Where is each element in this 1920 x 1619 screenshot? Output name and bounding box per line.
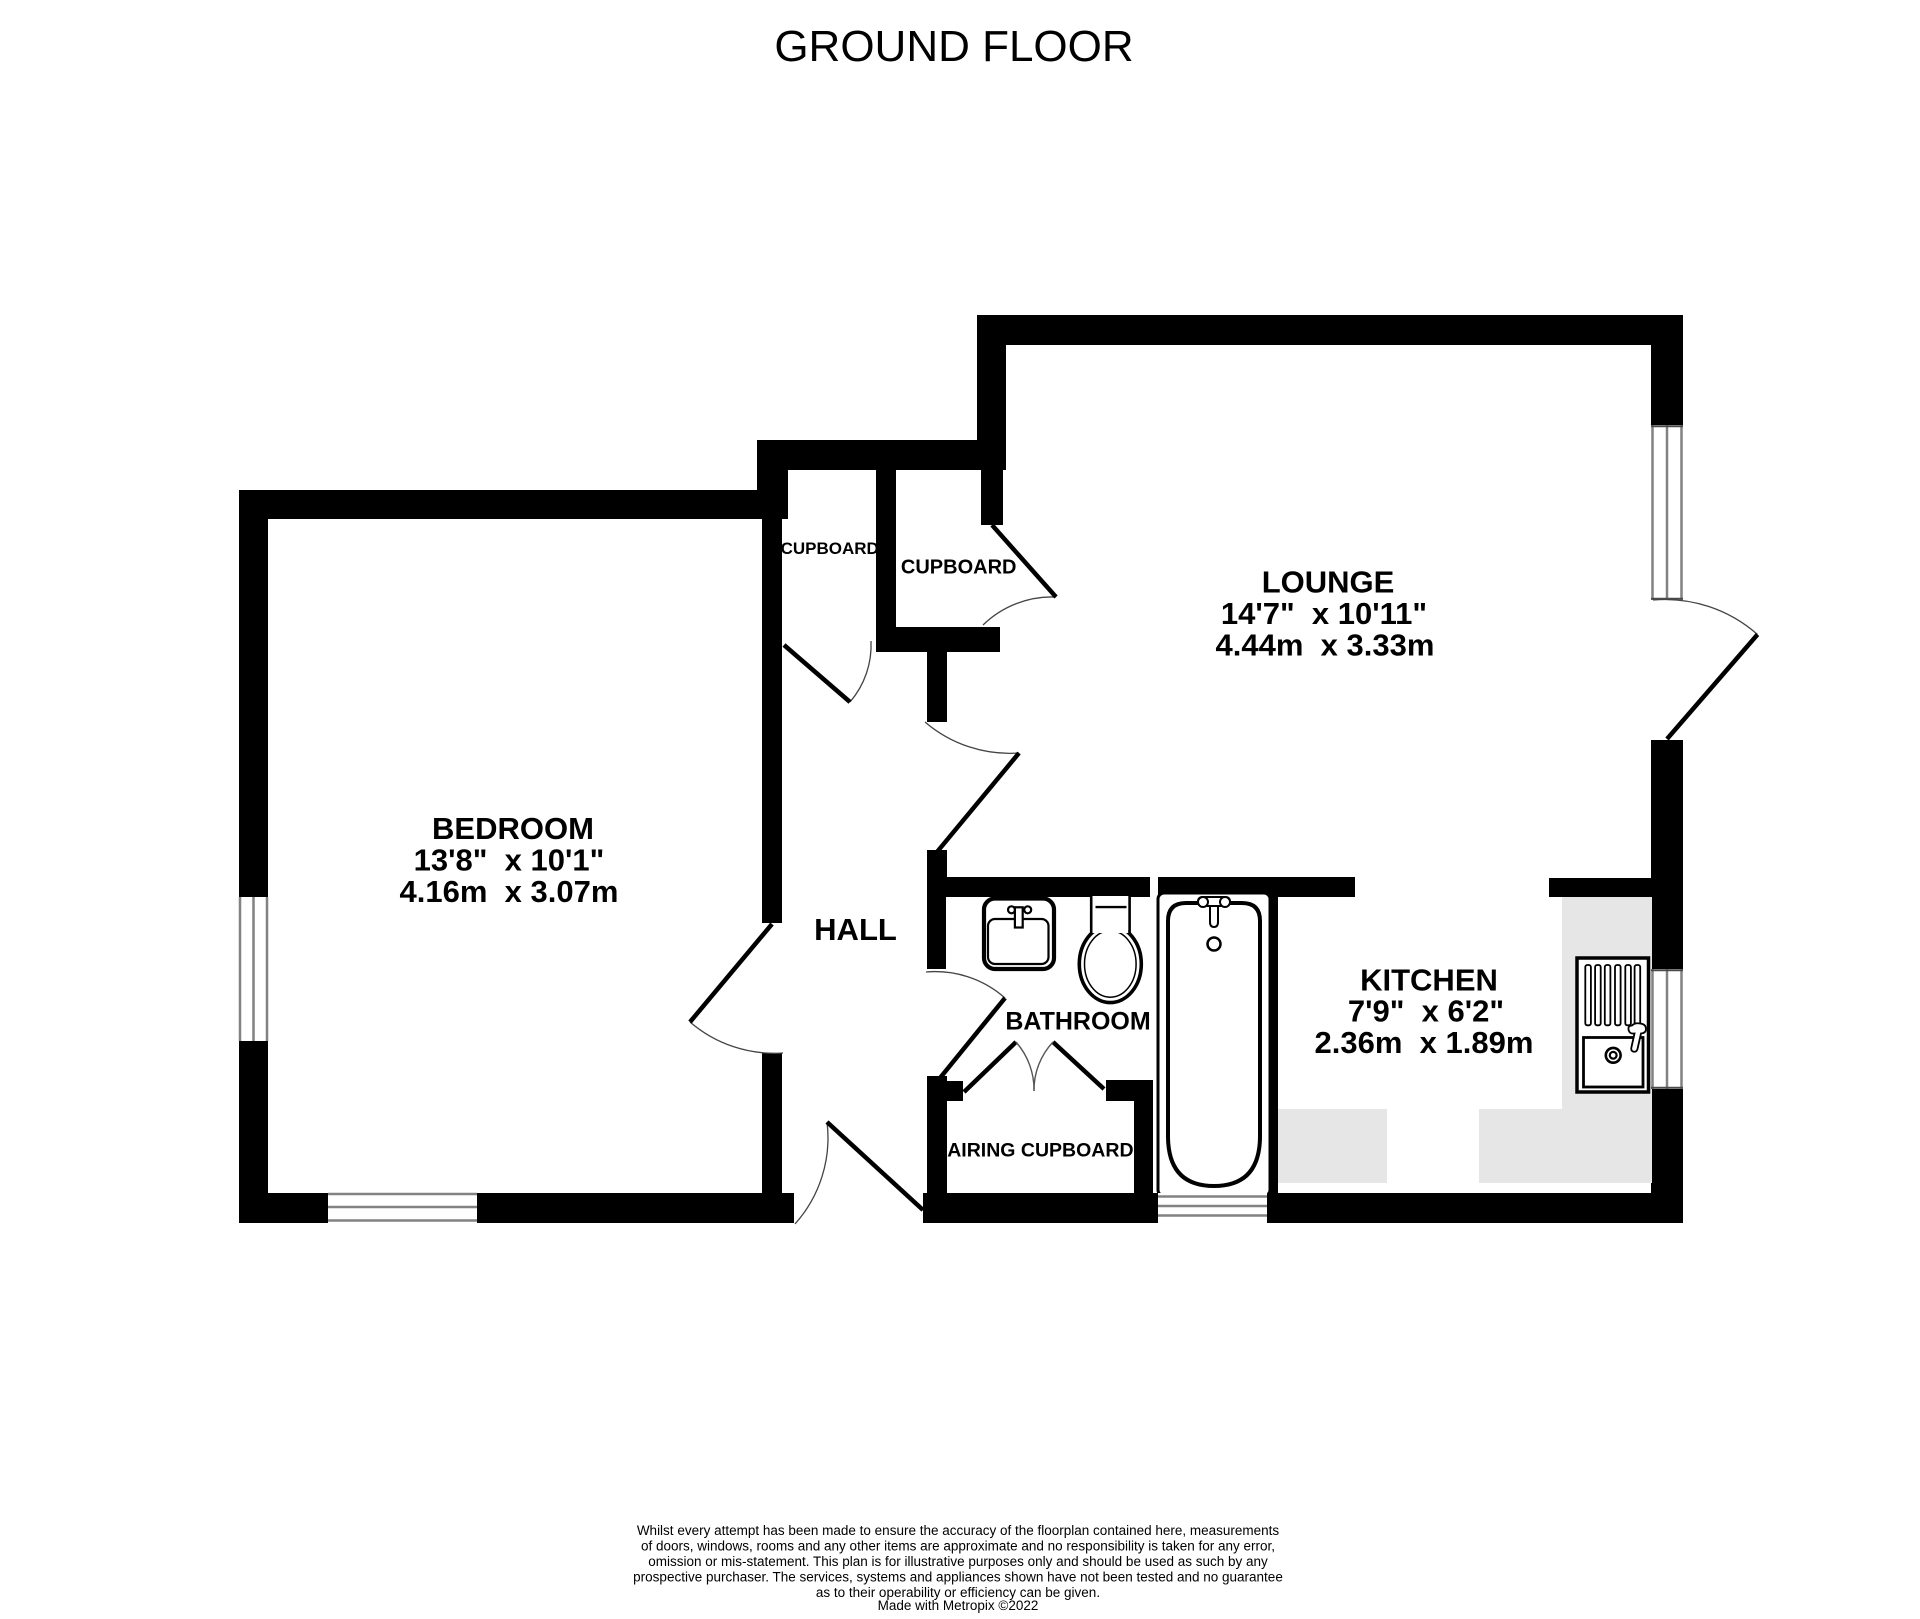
- svg-text:KITCHEN: KITCHEN: [1360, 963, 1498, 998]
- svg-text:BATHROOM: BATHROOM: [1005, 1008, 1150, 1036]
- svg-text:13'8" x 10'1": 13'8" x 10'1": [414, 843, 605, 878]
- svg-text:BEDROOM: BEDROOM: [432, 811, 594, 846]
- svg-text:AIRING CUPBOARD: AIRING CUPBOARD: [947, 1140, 1133, 1162]
- svg-text:CUPBOARD: CUPBOARD: [781, 539, 879, 558]
- svg-text:Made with Metropix ©2022: Made with Metropix ©2022: [878, 1598, 1039, 1613]
- svg-text:7'9" x 6'2": 7'9" x 6'2": [1348, 994, 1504, 1029]
- svg-text:4.16m x 3.07m: 4.16m x 3.07m: [400, 874, 619, 909]
- svg-text:of doors, windows, rooms and a: of doors, windows, rooms and any other i…: [641, 1539, 1275, 1554]
- svg-text:2.36m x 1.89m: 2.36m x 1.89m: [1315, 1025, 1534, 1060]
- svg-text:4.44m x 3.33m: 4.44m x 3.33m: [1216, 628, 1435, 663]
- svg-text:LOUNGE: LOUNGE: [1262, 565, 1395, 600]
- svg-text:Whilst every attempt has been: Whilst every attempt has been made to en…: [637, 1523, 1280, 1538]
- svg-text:14'7" x 10'11": 14'7" x 10'11": [1221, 596, 1427, 631]
- svg-text:omission or mis-statement. Thi: omission or mis-statement. This plan is …: [648, 1554, 1268, 1569]
- svg-text:HALL: HALL: [814, 912, 897, 947]
- svg-text:CUPBOARD: CUPBOARD: [901, 557, 1017, 579]
- svg-text:prospective purchaser. The ser: prospective purchaser. The services, sys…: [633, 1569, 1283, 1584]
- svg-text:GROUND FLOOR: GROUND FLOOR: [774, 22, 1133, 71]
